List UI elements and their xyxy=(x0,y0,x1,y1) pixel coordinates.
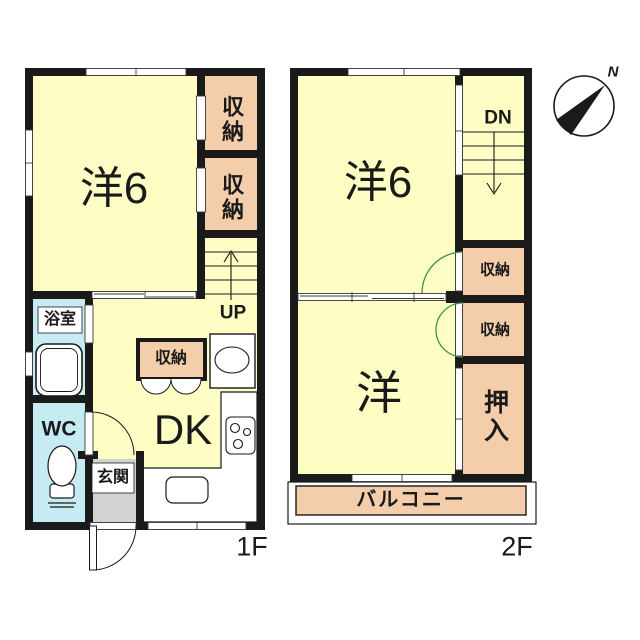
window xyxy=(26,352,33,376)
entrance-door-leaf xyxy=(90,526,97,570)
room-label-2f-balcony: バルコニー xyxy=(356,490,466,510)
compass-icon xyxy=(554,76,614,136)
closet-opening xyxy=(456,252,463,291)
room-label-2f-western6: 洋6 xyxy=(344,161,412,205)
room-label-1f-western6: 洋6 xyxy=(80,167,148,211)
entrance-door-arc xyxy=(92,526,136,570)
bath-door-opening xyxy=(85,305,93,343)
room-label-1f-wc: WC xyxy=(42,419,77,440)
stairs-down-label: DN xyxy=(484,109,511,128)
room-label-1f-entrance: 玄関 xyxy=(97,470,129,486)
washbasin-icon xyxy=(210,334,255,388)
sink-icon xyxy=(166,477,208,503)
floor-plan-page: 洋6 収納 収納 UP 浴室 WC DK 収納 玄関 1F 洋6 DN 収納 収… xyxy=(0,0,640,640)
room-label-1f-dk-storage: 収納 xyxy=(155,351,187,367)
closet-opening xyxy=(197,96,206,140)
toilet-icon xyxy=(48,446,76,507)
room-label-2f-western: 洋 xyxy=(356,370,402,416)
closet-opening xyxy=(197,168,206,212)
compass-north-label: N xyxy=(608,65,619,80)
bathtub-icon xyxy=(36,344,82,396)
closet-opening xyxy=(456,303,463,356)
room-label-1f-storage-a: 収納 xyxy=(220,95,242,145)
room-label-2f-storage-a: 収納 xyxy=(480,263,510,278)
room-label-2f-storage-b: 収納 xyxy=(480,323,510,338)
floor2-label: 2F xyxy=(501,534,533,561)
sliding-door xyxy=(92,292,196,299)
room-label-2f-oshiire: 押入 xyxy=(482,389,507,445)
floor-plan-drawing xyxy=(0,0,640,640)
dk-door-opening xyxy=(85,412,93,455)
room-label-1f-storage-b: 収納 xyxy=(220,173,242,223)
stairs-up-label: UP xyxy=(220,304,246,323)
room-label-1f-dk: DK xyxy=(154,409,212,451)
floor1-label: 1F xyxy=(236,534,268,561)
stove-icon xyxy=(226,417,255,454)
stair-access-opening xyxy=(456,85,463,175)
sliding-partition xyxy=(298,294,446,301)
room-label-1f-bathroom: 浴室 xyxy=(44,312,76,328)
